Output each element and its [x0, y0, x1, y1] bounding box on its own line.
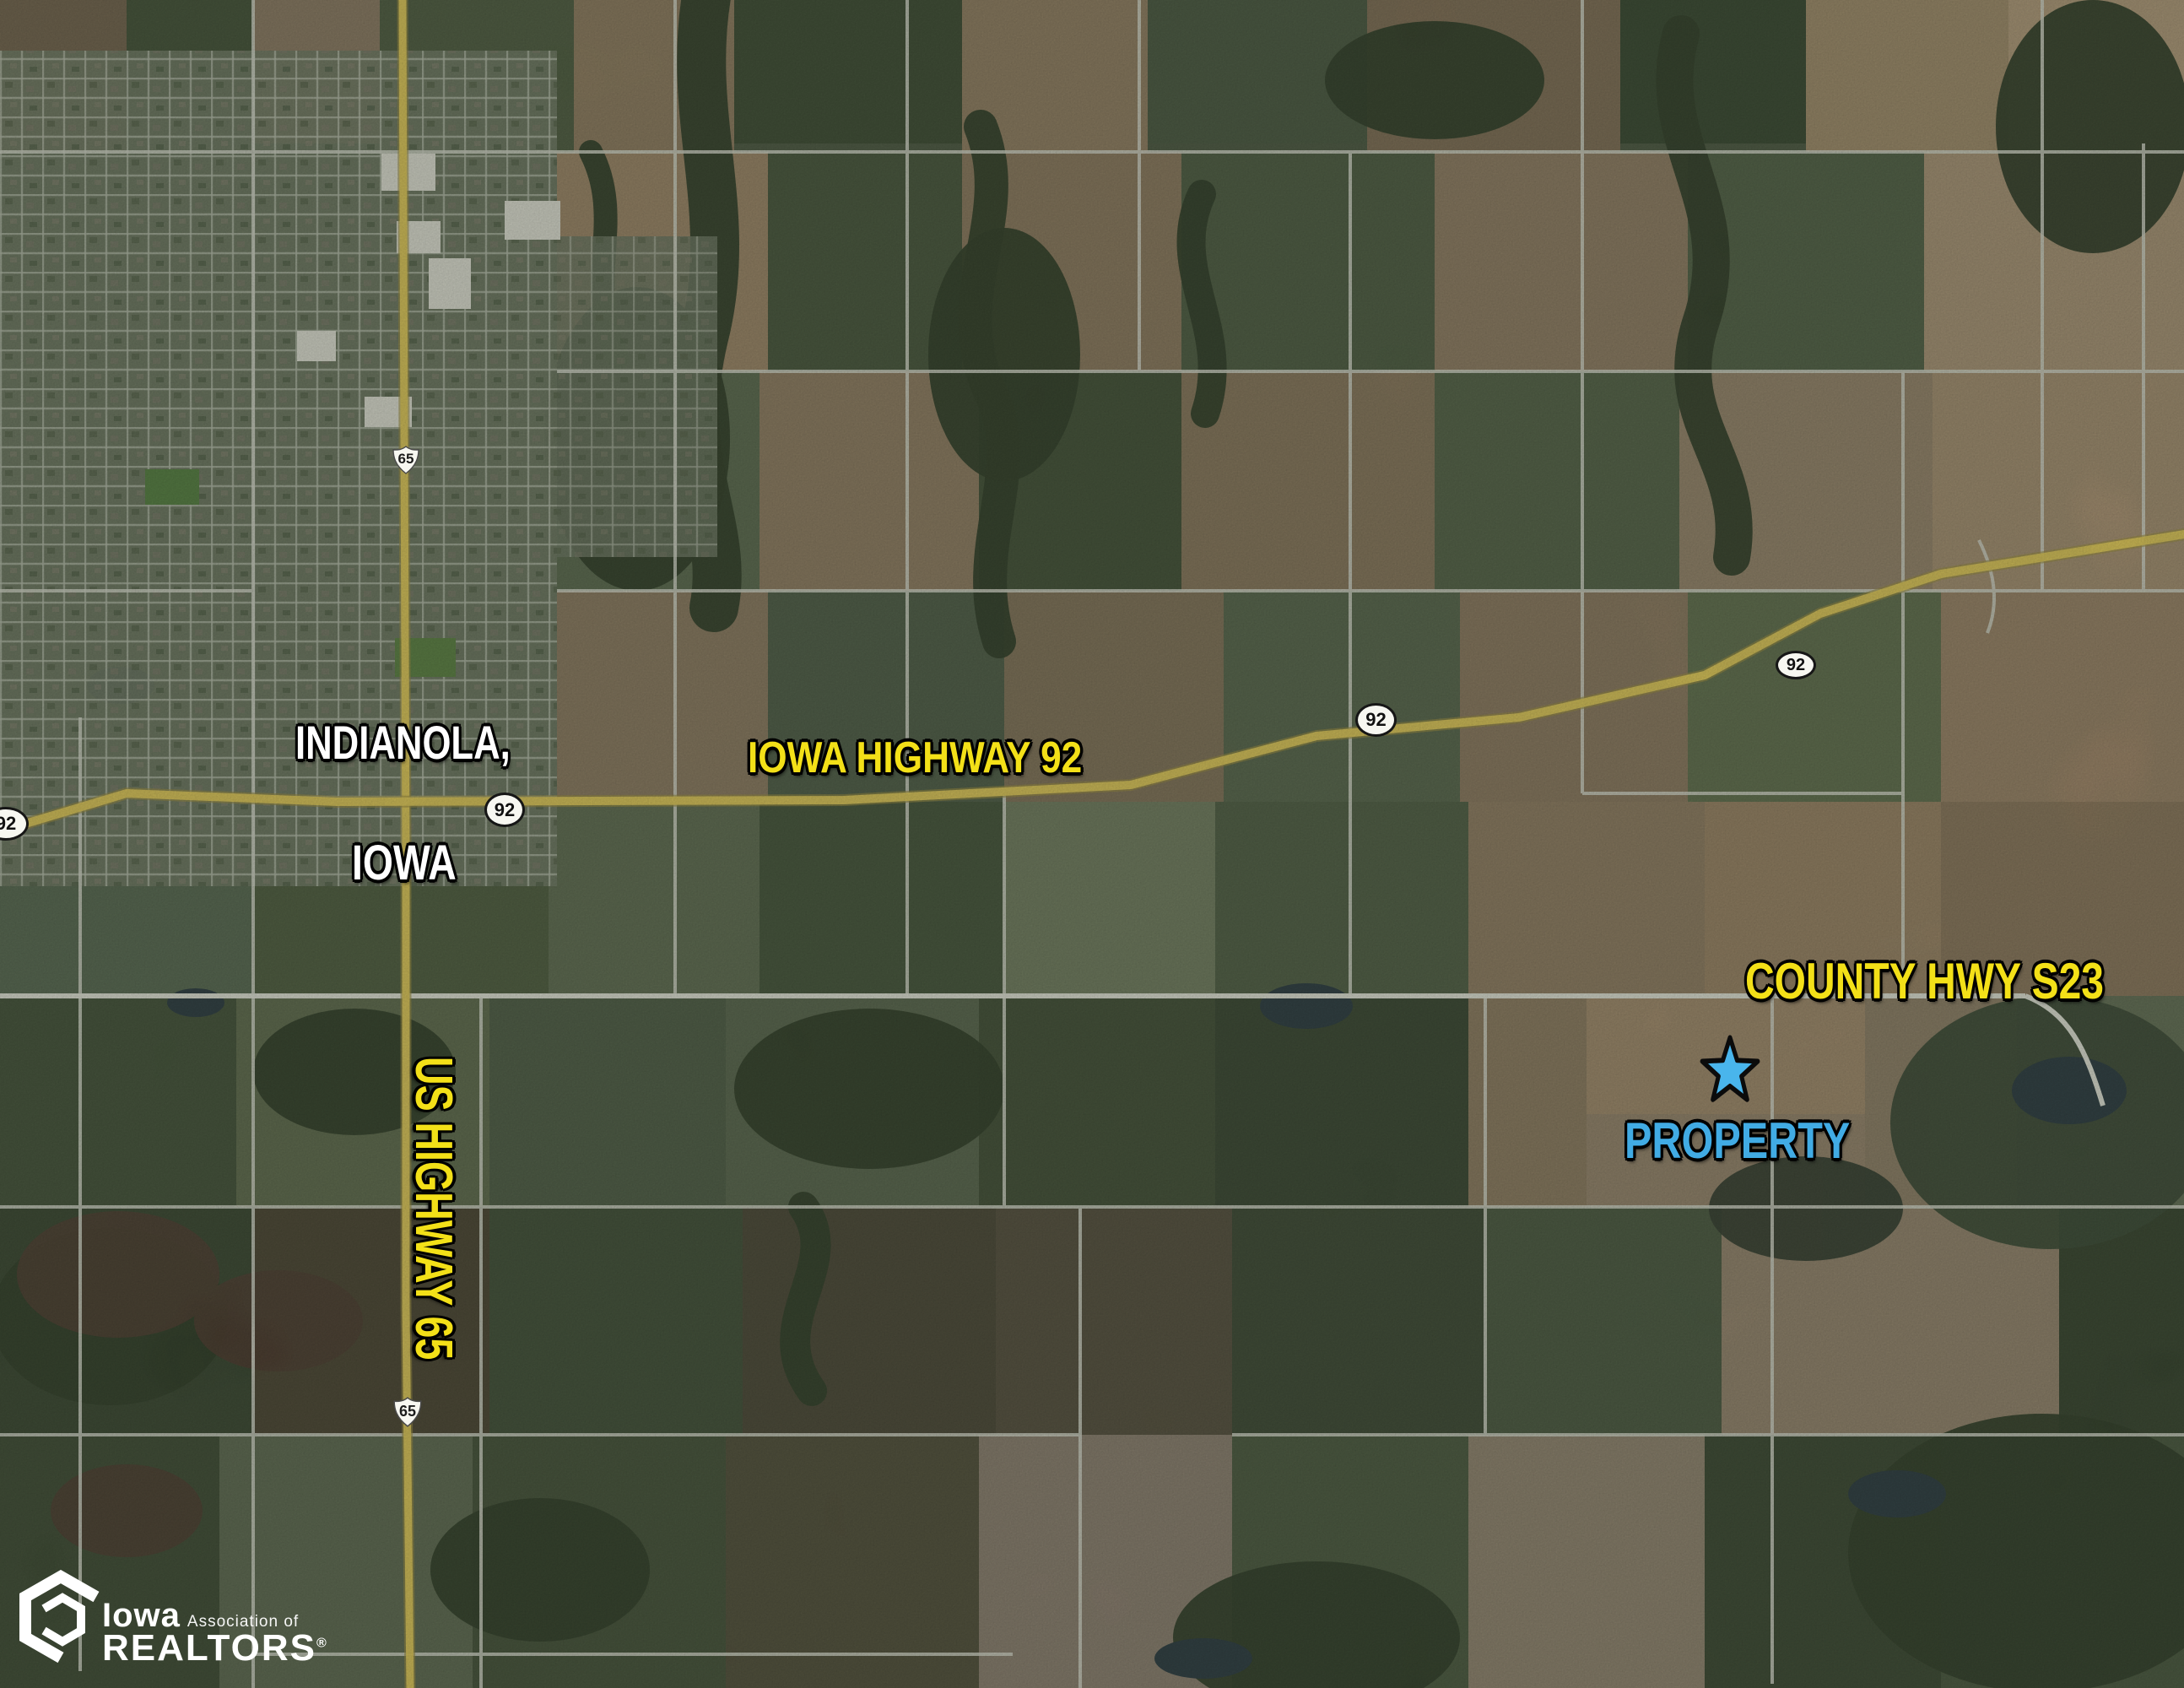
- us-highway-65-label: US HIGHWAY 65: [407, 1057, 459, 1360]
- logo-name: REALTORS®: [102, 1627, 328, 1669]
- satellite-terrain: [0, 0, 2184, 1688]
- property-label: PROPERTY: [1624, 1116, 1850, 1166]
- iowa-92-shield-city: 92: [484, 793, 525, 827]
- iowa-realtors-logo: IowaAssociation of REALTORS®: [19, 1568, 322, 1674]
- us-65-shield-number: 65: [392, 1403, 424, 1420]
- iowa-92-shield-number: 92: [495, 799, 515, 821]
- logo-name-text: REALTORS: [102, 1627, 316, 1669]
- hexagon-logo-icon: [19, 1570, 103, 1671]
- iowa-92-shield-middle: 92: [1355, 703, 1397, 737]
- county-hwy-s23-label: COUNTY HWY S23: [1745, 956, 2104, 1007]
- iowa-92-shield-right: 92: [1776, 651, 1816, 679]
- city-label-line2: IOWA: [352, 839, 457, 888]
- registered-mark: ®: [316, 1636, 328, 1650]
- star-icon: [1702, 1037, 1758, 1099]
- iowa-92-shield-number: 92: [1787, 656, 1805, 675]
- aerial-map: INDIANOLA, IOWA IOWA HIGHWAY 92 COUNTY H…: [0, 0, 2184, 1688]
- us-65-shield-top: 65: [391, 445, 421, 475]
- highway-92-label: IOWA HIGHWAY 92: [748, 736, 1082, 780]
- iowa-92-shield-number: 92: [0, 813, 16, 835]
- iowa-92-shield-number: 92: [1365, 709, 1386, 731]
- city-label-line1: INDIANOLA,: [295, 719, 511, 766]
- us-65-shield-number: 65: [391, 451, 421, 468]
- us-65-shield-bottom: 65: [392, 1396, 424, 1428]
- property-star-marker: [1693, 1031, 1767, 1117]
